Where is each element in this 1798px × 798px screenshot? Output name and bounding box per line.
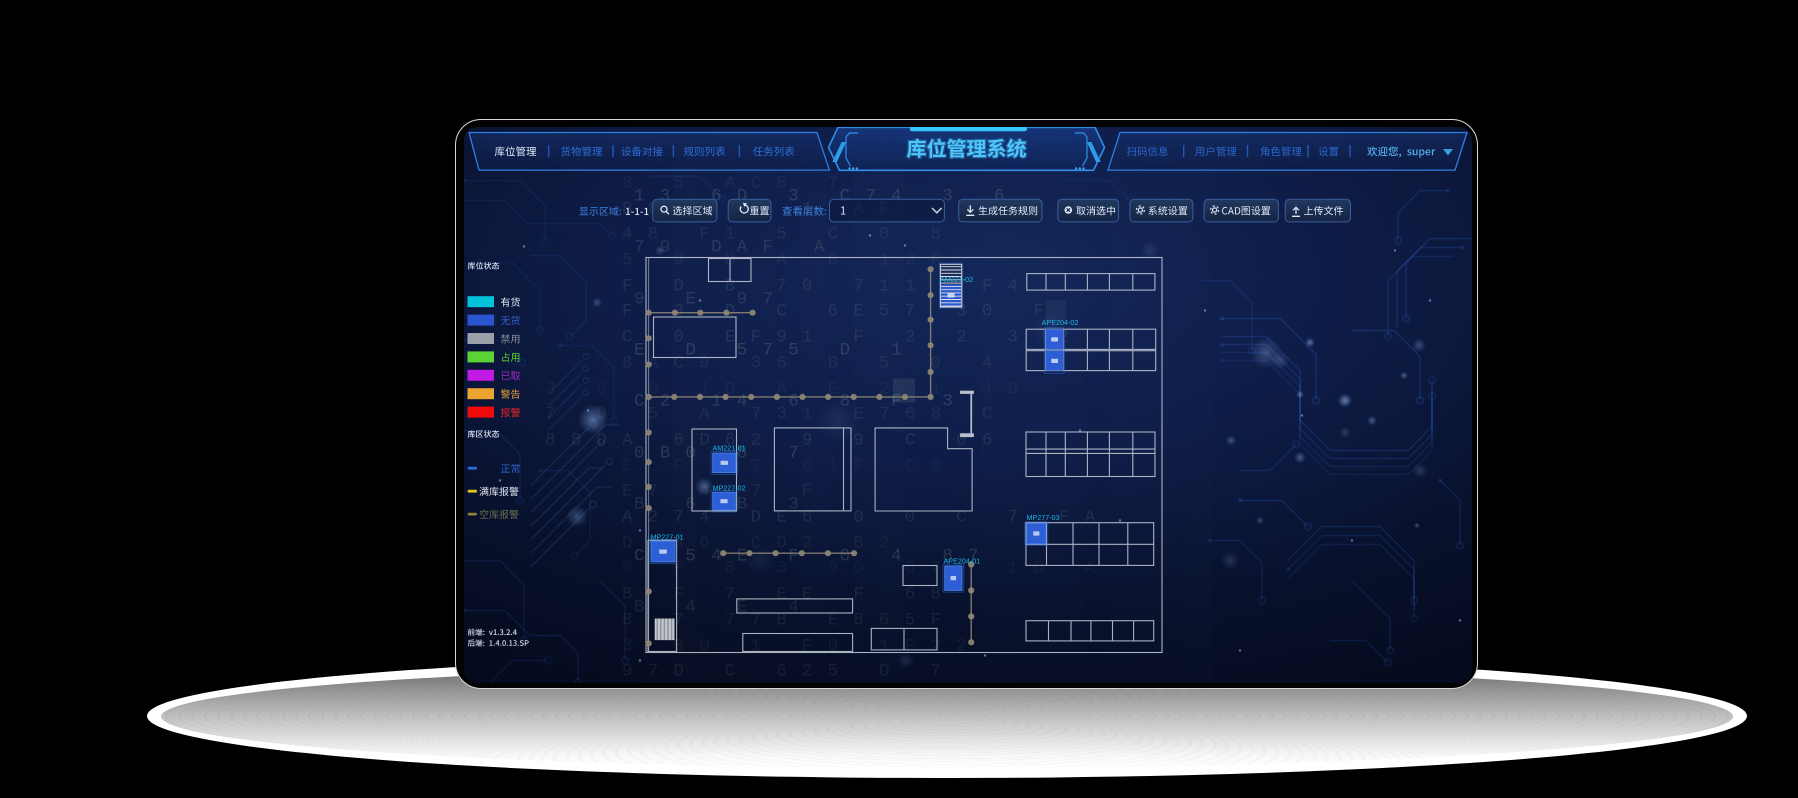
svg-text:AM221-01: AM221-01 (713, 443, 746, 452)
svg-text:MP227-01: MP227-01 (651, 532, 684, 541)
svg-text:79 DAF A: 79 DAF A (634, 237, 840, 257)
svg-text:APE204-01: APE204-01 (944, 556, 981, 565)
svg-text:9 E 97: 9 E 97 (634, 289, 788, 309)
svg-text:AM221-02: AM221-02 (940, 275, 973, 284)
svg-text:MP277-03: MP277-03 (1027, 513, 1060, 522)
svg-text:3 B0 1 F0 1F22: 3 B0 1 F0 1F22 (622, 636, 982, 656)
svg-text:97D C 625 D 7: 97D C 625 D 7 (622, 661, 956, 681)
svg-text:B 4 E 4: B 4 E 4 (634, 597, 814, 617)
svg-text:MP227-02: MP227-02 (713, 483, 746, 492)
svg-text:C 54E F 0 4 87: C 54E F 0 4 87 (634, 546, 994, 566)
svg-text:APE204-02: APE204-02 (1042, 317, 1079, 326)
